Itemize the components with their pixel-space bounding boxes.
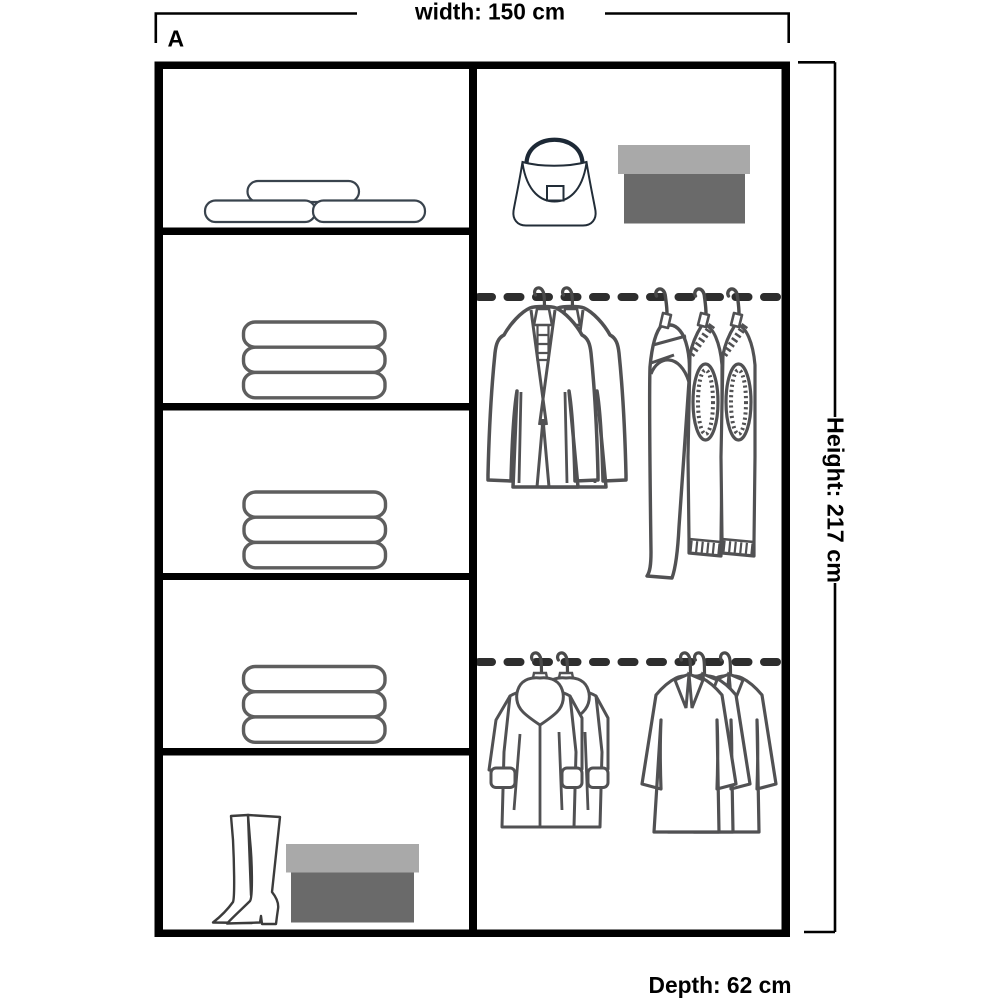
svg-text:width: 150 cm: width: 150 cm bbox=[414, 0, 565, 25]
svg-text:Depth: 62 cm: Depth: 62 cm bbox=[649, 972, 792, 998]
svg-text:A: A bbox=[168, 26, 185, 52]
svg-text:Height: 217 cm: Height: 217 cm bbox=[823, 417, 849, 583]
